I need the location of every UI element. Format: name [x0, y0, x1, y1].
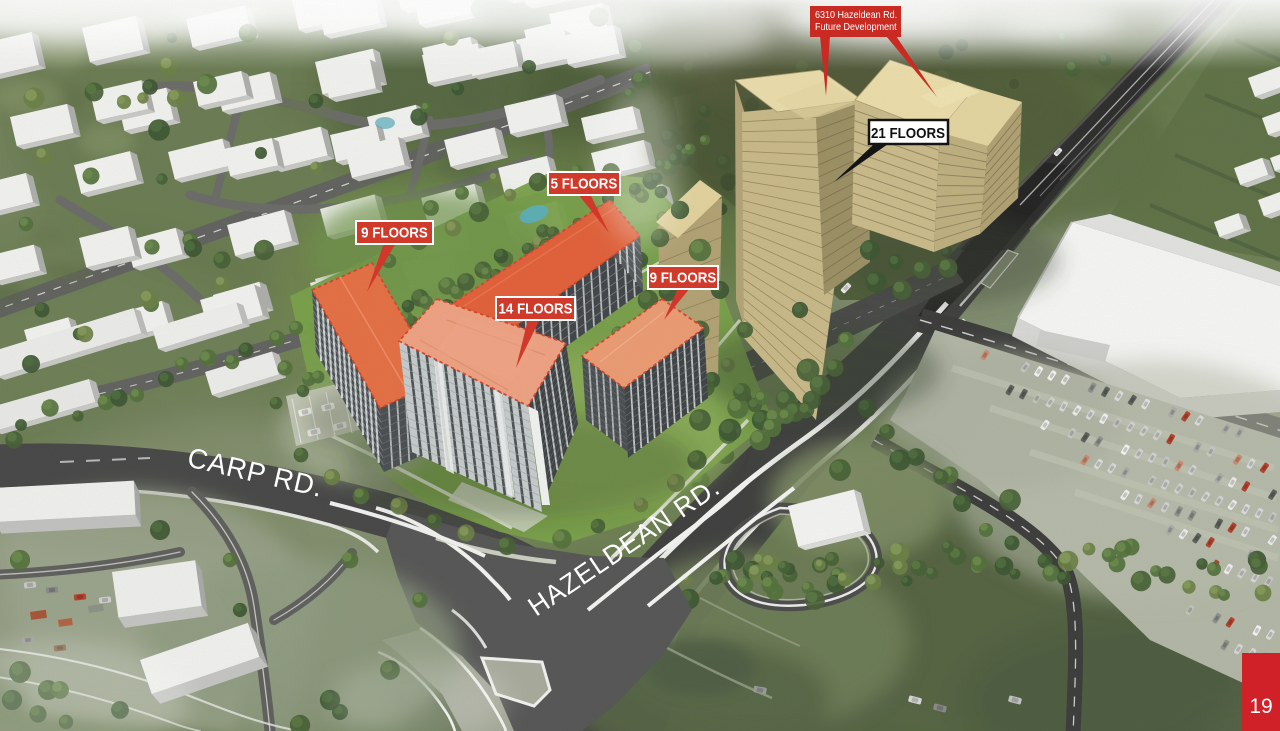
svg-text:14 FLOORS: 14 FLOORS — [498, 300, 572, 317]
svg-text:9 FLOORS: 9 FLOORS — [361, 224, 428, 241]
svg-text:19: 19 — [1249, 695, 1272, 718]
svg-text:6310 Hazeldean Rd.: 6310 Hazeldean Rd. — [815, 9, 897, 20]
svg-text:5 FLOORS: 5 FLOORS — [551, 175, 618, 192]
svg-text:9 FLOORS: 9 FLOORS — [650, 269, 717, 286]
svg-text:Future Development: Future Development — [815, 21, 897, 32]
svg-text:21 FLOORS: 21 FLOORS — [871, 124, 945, 141]
